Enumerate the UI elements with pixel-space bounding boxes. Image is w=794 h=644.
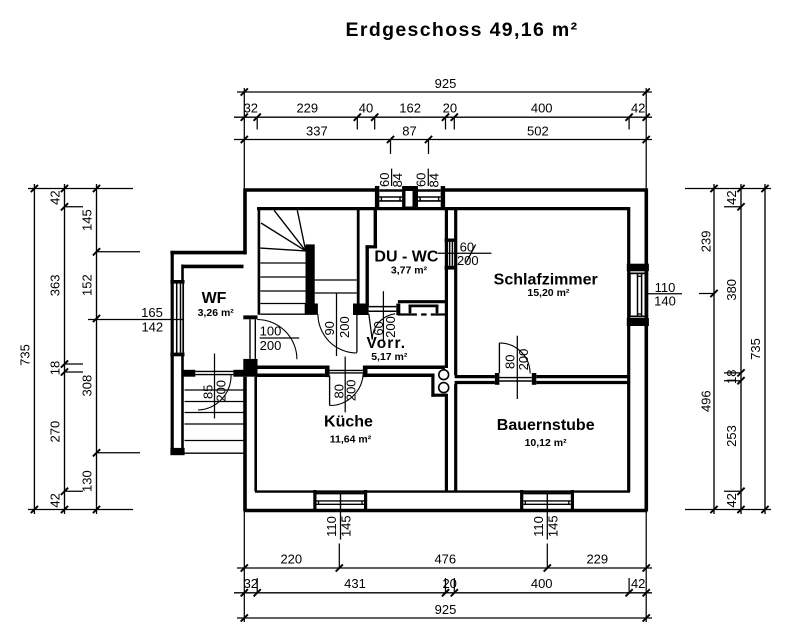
svg-text:Vorr.: Vorr. bbox=[366, 335, 406, 352]
svg-text:502: 502 bbox=[527, 124, 549, 139]
svg-text:32: 32 bbox=[244, 576, 258, 591]
svg-text:220: 220 bbox=[280, 552, 302, 567]
svg-text:200: 200 bbox=[344, 379, 359, 401]
svg-text:253: 253 bbox=[724, 425, 739, 447]
svg-text:87: 87 bbox=[402, 124, 416, 139]
svg-text:42: 42 bbox=[631, 101, 645, 116]
svg-text:152: 152 bbox=[80, 274, 95, 296]
svg-text:110: 110 bbox=[531, 516, 546, 537]
svg-text:5,17 m²: 5,17 m² bbox=[371, 351, 408, 363]
svg-text:42: 42 bbox=[631, 576, 645, 591]
svg-text:42: 42 bbox=[48, 493, 63, 507]
svg-text:476: 476 bbox=[434, 552, 456, 567]
svg-text:229: 229 bbox=[586, 552, 608, 567]
svg-text:735: 735 bbox=[748, 338, 763, 360]
svg-text:84: 84 bbox=[427, 173, 442, 187]
svg-text:42: 42 bbox=[48, 190, 63, 204]
svg-text:400: 400 bbox=[531, 576, 553, 591]
svg-text:200: 200 bbox=[214, 380, 229, 402]
svg-text:20: 20 bbox=[443, 101, 457, 116]
svg-text:18: 18 bbox=[48, 361, 63, 375]
svg-text:11,64 m²: 11,64 m² bbox=[330, 434, 372, 446]
svg-text:WF: WF bbox=[202, 290, 227, 307]
svg-text:165: 165 bbox=[141, 305, 163, 320]
svg-text:90: 90 bbox=[322, 321, 337, 335]
svg-text:400: 400 bbox=[531, 101, 553, 116]
svg-text:735: 735 bbox=[18, 344, 33, 366]
svg-text:130: 130 bbox=[80, 470, 95, 492]
svg-text:200: 200 bbox=[337, 316, 352, 338]
svg-text:363: 363 bbox=[48, 275, 63, 297]
svg-text:431: 431 bbox=[344, 576, 366, 591]
svg-text:925: 925 bbox=[435, 602, 457, 617]
svg-text:84: 84 bbox=[390, 173, 405, 187]
svg-text:145: 145 bbox=[80, 209, 95, 231]
svg-text:142: 142 bbox=[141, 320, 163, 335]
svg-text:229: 229 bbox=[296, 101, 318, 116]
svg-text:20: 20 bbox=[442, 576, 456, 591]
svg-text:3,77 m²: 3,77 m² bbox=[391, 265, 428, 277]
svg-text:200: 200 bbox=[260, 338, 282, 353]
svg-text:100: 100 bbox=[260, 324, 282, 339]
svg-text:Bauernstube: Bauernstube bbox=[497, 417, 595, 434]
svg-text:Küche: Küche bbox=[324, 414, 373, 431]
svg-text:270: 270 bbox=[48, 421, 63, 443]
svg-text:10,12 m²: 10,12 m² bbox=[525, 437, 568, 449]
svg-text:925: 925 bbox=[435, 76, 457, 91]
svg-text:110: 110 bbox=[324, 516, 339, 537]
svg-text:DU - WC: DU - WC bbox=[374, 249, 438, 266]
svg-text:145: 145 bbox=[545, 515, 560, 537]
svg-text:3,26 m²: 3,26 m² bbox=[198, 307, 235, 319]
svg-text:140: 140 bbox=[654, 294, 676, 309]
svg-text:200: 200 bbox=[516, 349, 531, 371]
svg-text:40: 40 bbox=[359, 101, 373, 116]
svg-text:337: 337 bbox=[306, 124, 328, 139]
svg-text:42: 42 bbox=[724, 190, 739, 204]
svg-text:32: 32 bbox=[244, 101, 258, 116]
svg-text:162: 162 bbox=[399, 101, 421, 116]
svg-text:496: 496 bbox=[699, 390, 714, 412]
svg-text:380: 380 bbox=[724, 279, 739, 301]
svg-text:308: 308 bbox=[80, 375, 95, 397]
svg-text:15,20 m²: 15,20 m² bbox=[527, 287, 570, 299]
svg-text:Schlafzimmer: Schlafzimmer bbox=[494, 272, 598, 289]
svg-text:145: 145 bbox=[339, 515, 354, 537]
svg-text:239: 239 bbox=[699, 231, 714, 253]
svg-text:18: 18 bbox=[724, 370, 739, 384]
svg-text:Erdgeschoss 49,16 m²: Erdgeschoss 49,16 m² bbox=[346, 19, 579, 41]
svg-text:42: 42 bbox=[724, 493, 739, 507]
